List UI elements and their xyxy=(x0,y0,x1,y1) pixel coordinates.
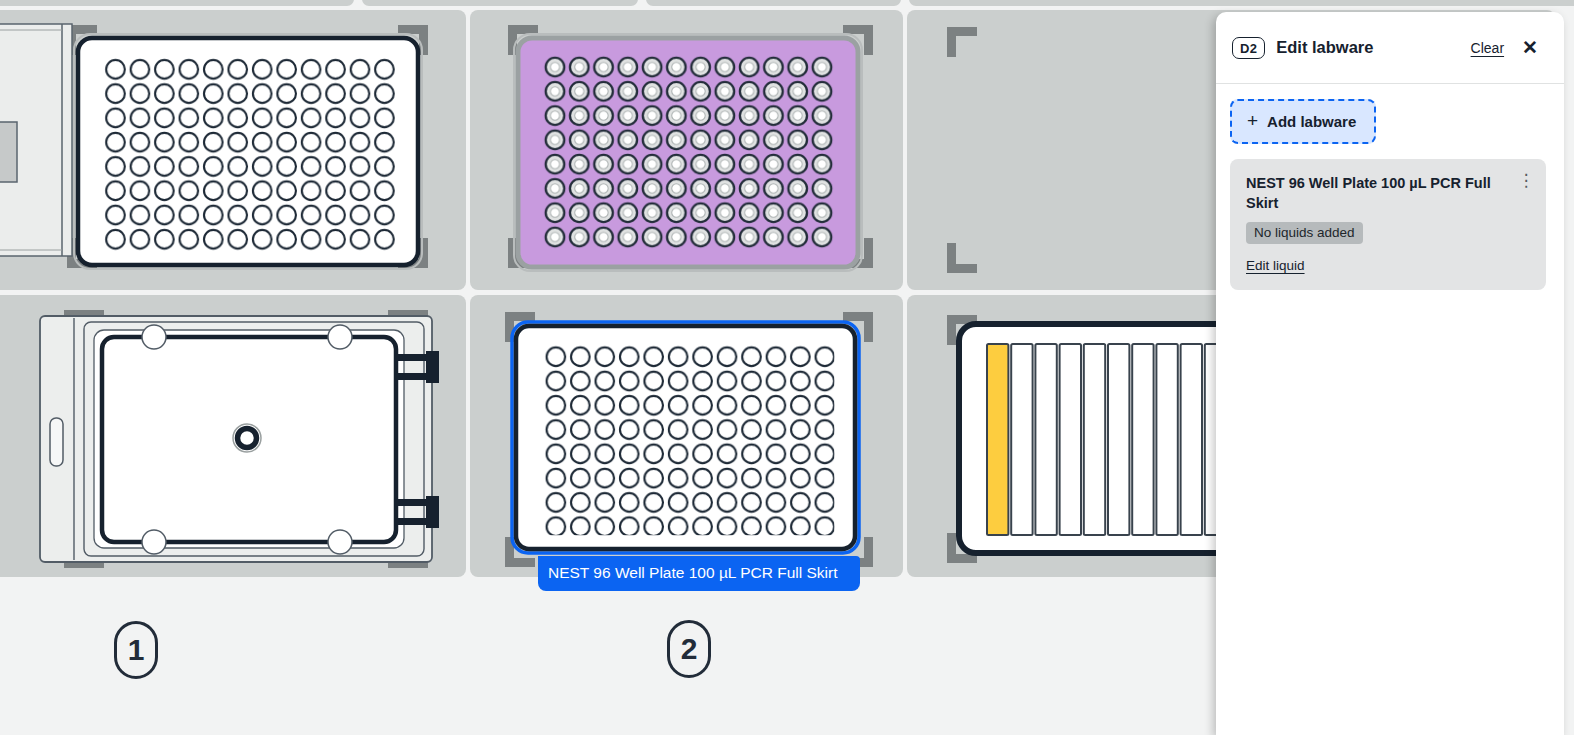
plus-icon: + xyxy=(1247,111,1258,130)
slot-strip xyxy=(362,0,638,6)
module-handle xyxy=(50,418,63,466)
slot-strip xyxy=(909,0,1574,6)
add-labware-button[interactable]: + Add labware xyxy=(1230,99,1376,144)
slot-strip xyxy=(0,0,354,6)
protocol-designer-deck-view: 1 2 NEST 96 Well Plate 100 µL PCR Full S… xyxy=(0,0,1574,735)
reservoir-channel-filled xyxy=(987,344,1008,535)
panel-title: Edit labware xyxy=(1276,38,1373,57)
slot-number-2: 2 xyxy=(667,620,711,678)
module-heater-shaker[interactable] xyxy=(40,310,439,568)
well-grid xyxy=(544,345,835,536)
edit-labware-panel: D2 Edit labware Clear ✕ + Add labware NE… xyxy=(1216,12,1564,735)
shaker-center-mark xyxy=(238,429,257,448)
clear-link[interactable]: Clear xyxy=(1471,40,1504,56)
partial-module-left xyxy=(0,24,72,256)
kebab-menu-icon[interactable]: ⋮ xyxy=(1516,169,1536,191)
labware-card: NEST 96 Well Plate 100 µL PCR Full Skirt… xyxy=(1230,159,1546,290)
labware-reservoir[interactable] xyxy=(959,324,1259,553)
labware-card-name: NEST 96 Well Plate 100 µL PCR Full Skirt xyxy=(1246,173,1530,213)
panel-body: + Add labware NEST 96 Well Plate 100 µL … xyxy=(1216,84,1564,290)
labware-96-well-plate-top-left[interactable] xyxy=(74,34,422,269)
close-icon[interactable]: ✕ xyxy=(1520,36,1540,59)
add-labware-label: Add labware xyxy=(1267,113,1356,130)
selected-labware-tag: NEST 96 Well Plate 100 µL PCR Full Skirt xyxy=(538,556,860,591)
status-badge: No liquids added xyxy=(1246,222,1363,244)
slot-number-1: 1 xyxy=(114,621,158,679)
well-grid xyxy=(103,57,396,251)
labware-96-well-plate-selected[interactable] xyxy=(512,322,859,553)
slot-location-chip: D2 xyxy=(1232,37,1265,59)
well-grid xyxy=(543,55,834,249)
edit-liquid-link[interactable]: Edit liquid xyxy=(1246,258,1305,273)
labware-96-well-plate-purple[interactable] xyxy=(514,34,862,271)
panel-header: D2 Edit labware Clear ✕ xyxy=(1216,12,1564,84)
slot-strip xyxy=(646,0,901,6)
